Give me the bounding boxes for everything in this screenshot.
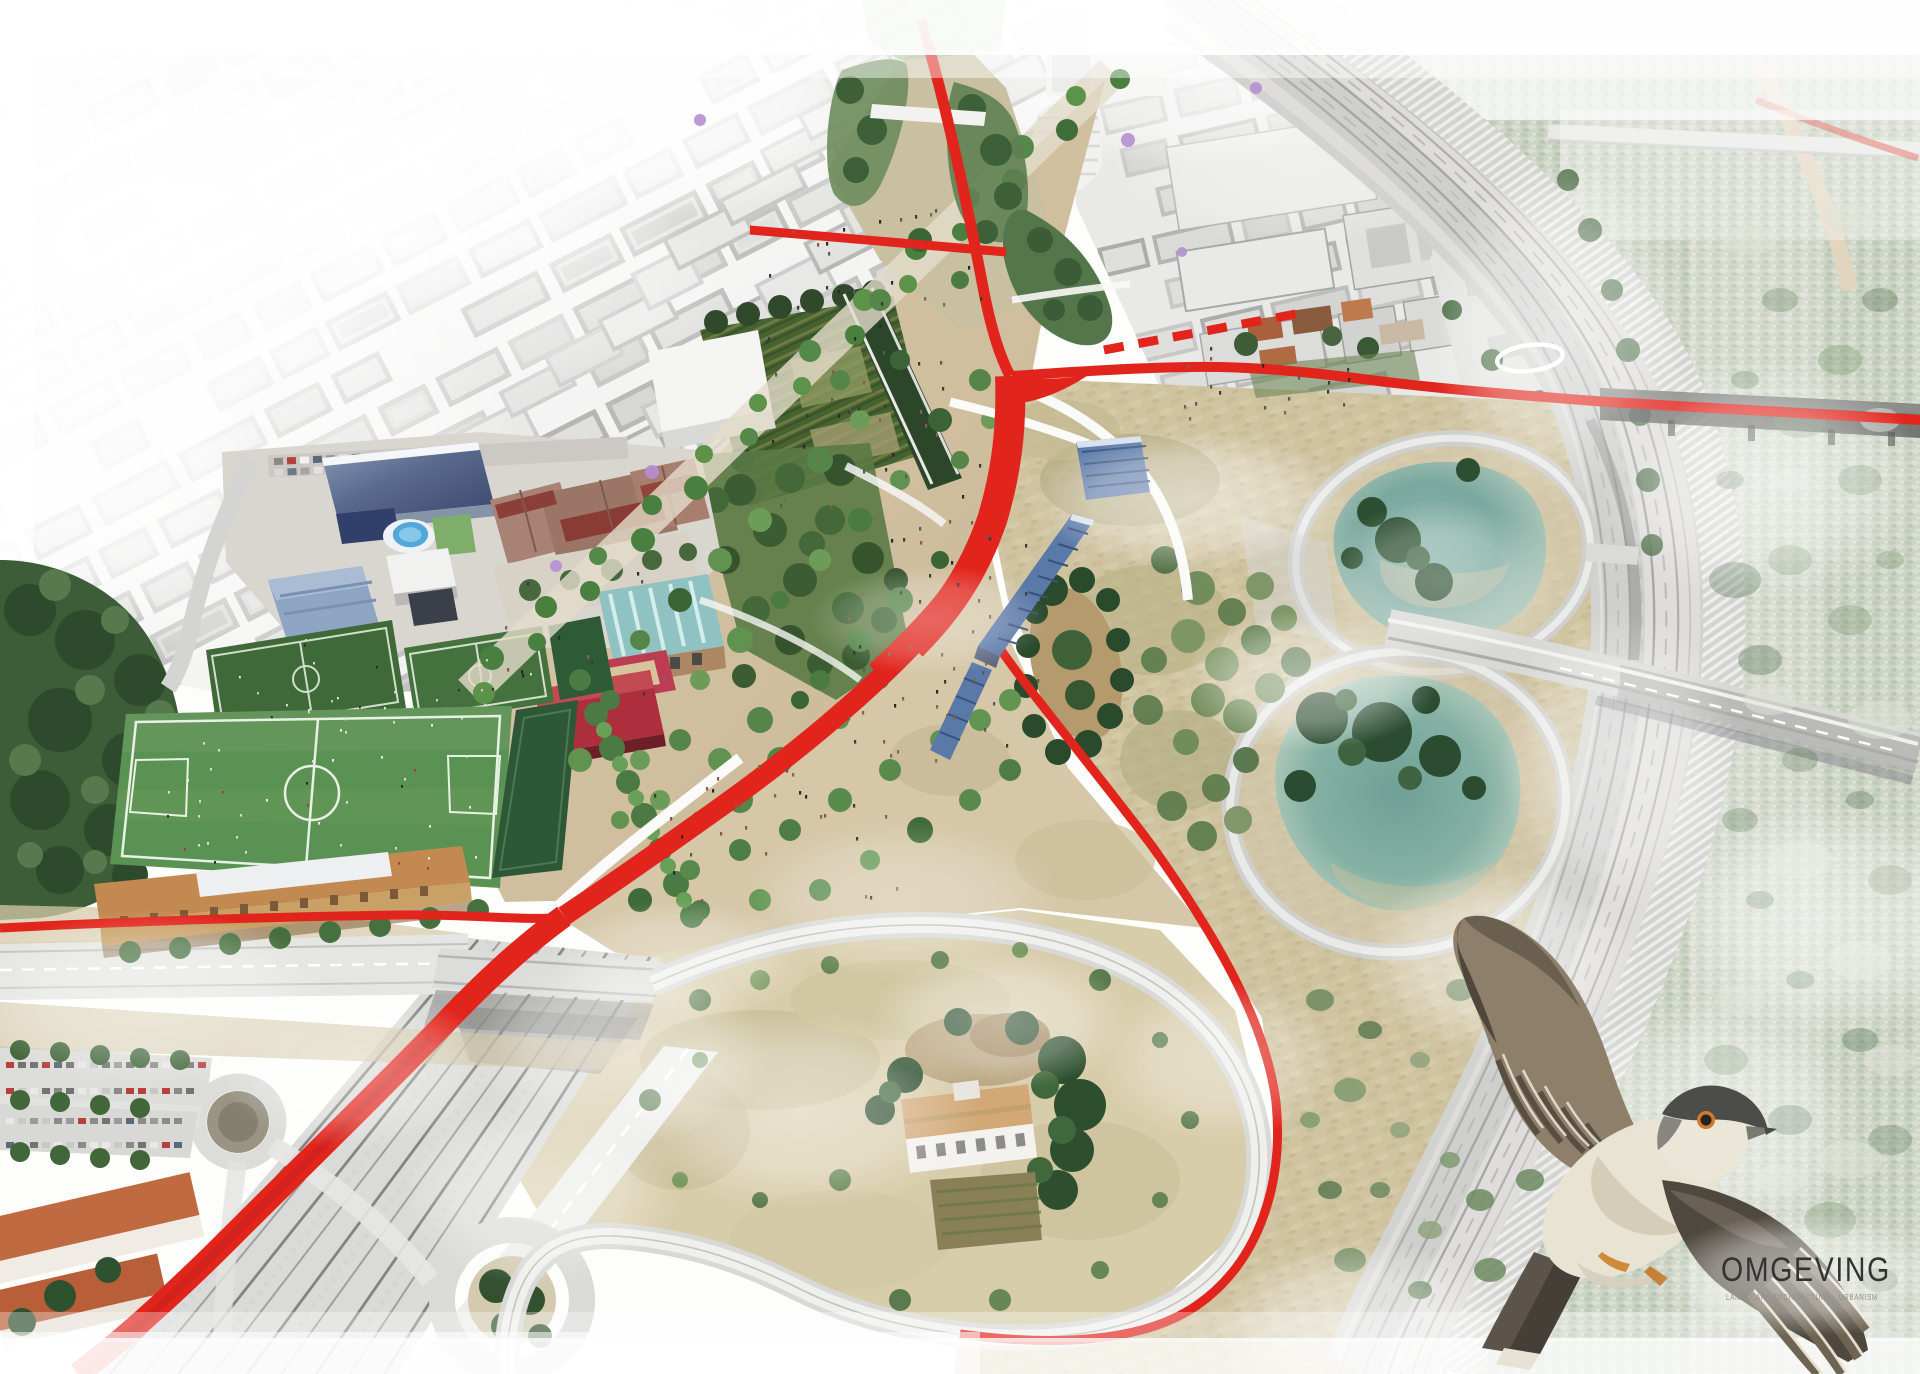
svg-text:LANDSCAPE ARCHITECTURE · URBAN: LANDSCAPE ARCHITECTURE · URBANISM — [1726, 1292, 1878, 1302]
svg-text:OMGEVING: OMGEVING — [1721, 1251, 1891, 1289]
